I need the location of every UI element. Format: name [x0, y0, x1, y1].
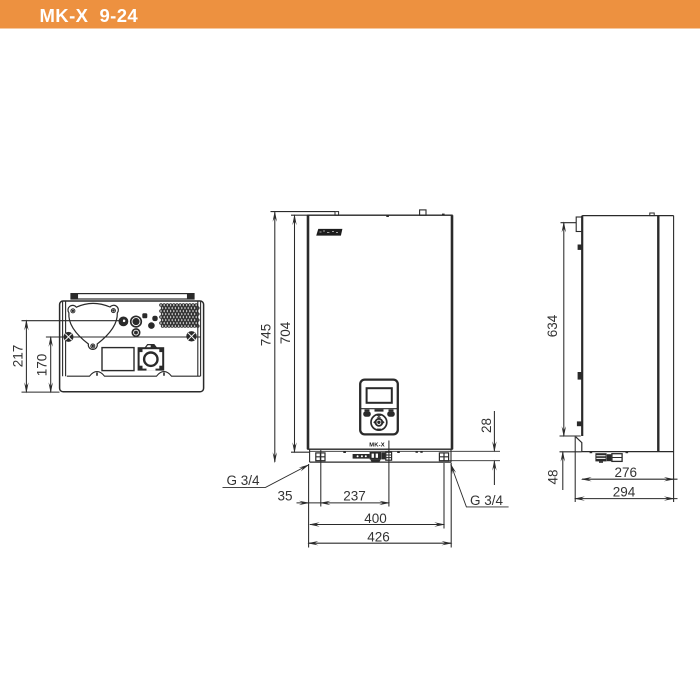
svg-text:28: 28	[479, 418, 494, 433]
svg-text:400: 400	[364, 511, 387, 526]
svg-text:237: 237	[343, 489, 366, 504]
svg-text:MK-X 9-24: MK-X 9-24	[40, 5, 139, 26]
svg-text:745: 745	[259, 324, 274, 347]
svg-text:217: 217	[11, 345, 26, 368]
svg-text:426: 426	[367, 530, 390, 545]
svg-text:276: 276	[615, 465, 638, 480]
svg-text:48: 48	[546, 469, 561, 484]
svg-text:G 3/4: G 3/4	[470, 493, 504, 508]
svg-text:170: 170	[35, 354, 50, 377]
svg-text:35: 35	[277, 489, 292, 504]
svg-text:294: 294	[613, 485, 636, 500]
svg-text:MK-X: MK-X	[369, 442, 385, 448]
svg-text:G 3/4: G 3/4	[227, 473, 261, 488]
svg-text:704: 704	[278, 321, 293, 344]
svg-text:634: 634	[545, 314, 560, 337]
